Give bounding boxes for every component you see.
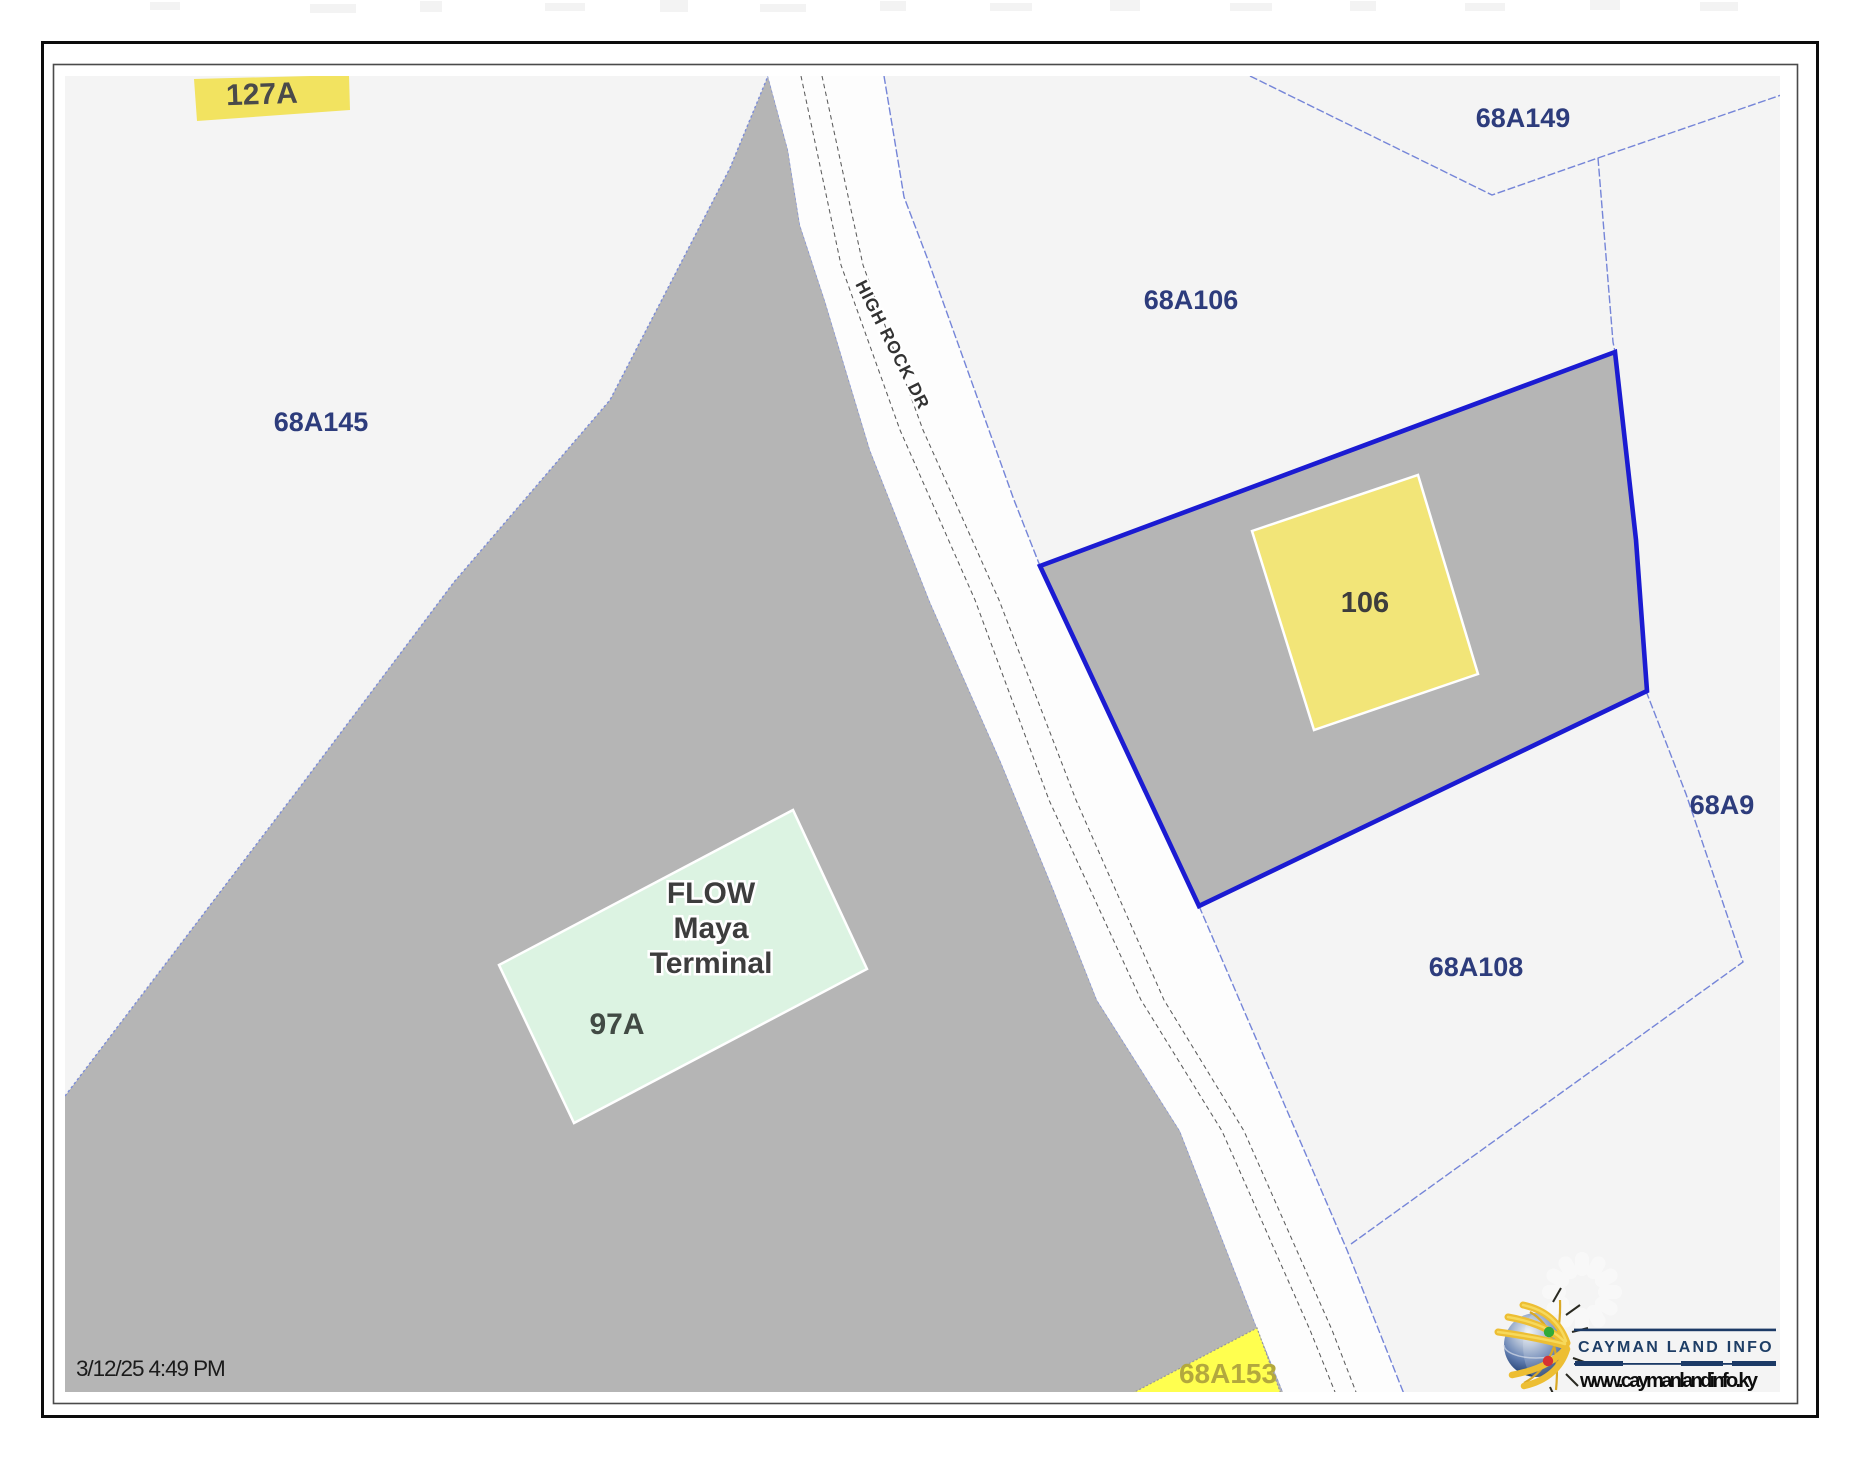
svg-text:68A153: 68A153 bbox=[1179, 1358, 1277, 1389]
svg-text:68A149: 68A149 bbox=[1476, 103, 1571, 133]
svg-text:3/12/25 4:49 PM: 3/12/25 4:49 PM bbox=[76, 1356, 225, 1381]
svg-text:FLOW: FLOW bbox=[667, 877, 756, 910]
svg-text:68A106: 68A106 bbox=[1144, 285, 1239, 315]
svg-text:68A9: 68A9 bbox=[1690, 790, 1755, 820]
svg-text:Maya: Maya bbox=[673, 912, 748, 945]
svg-text:CAYMAN LAND INFO: CAYMAN LAND INFO bbox=[1578, 1339, 1775, 1356]
svg-text:68A108: 68A108 bbox=[1429, 952, 1524, 982]
svg-text:68A145: 68A145 bbox=[274, 407, 369, 437]
svg-text:106: 106 bbox=[1341, 587, 1389, 619]
svg-text:127A: 127A bbox=[225, 77, 298, 112]
svg-text:www.caymanlandinfo.ky: www.caymanlandinfo.ky bbox=[1579, 1370, 1759, 1392]
svg-text:Terminal: Terminal bbox=[650, 947, 773, 980]
svg-text:97A: 97A bbox=[589, 1008, 644, 1041]
